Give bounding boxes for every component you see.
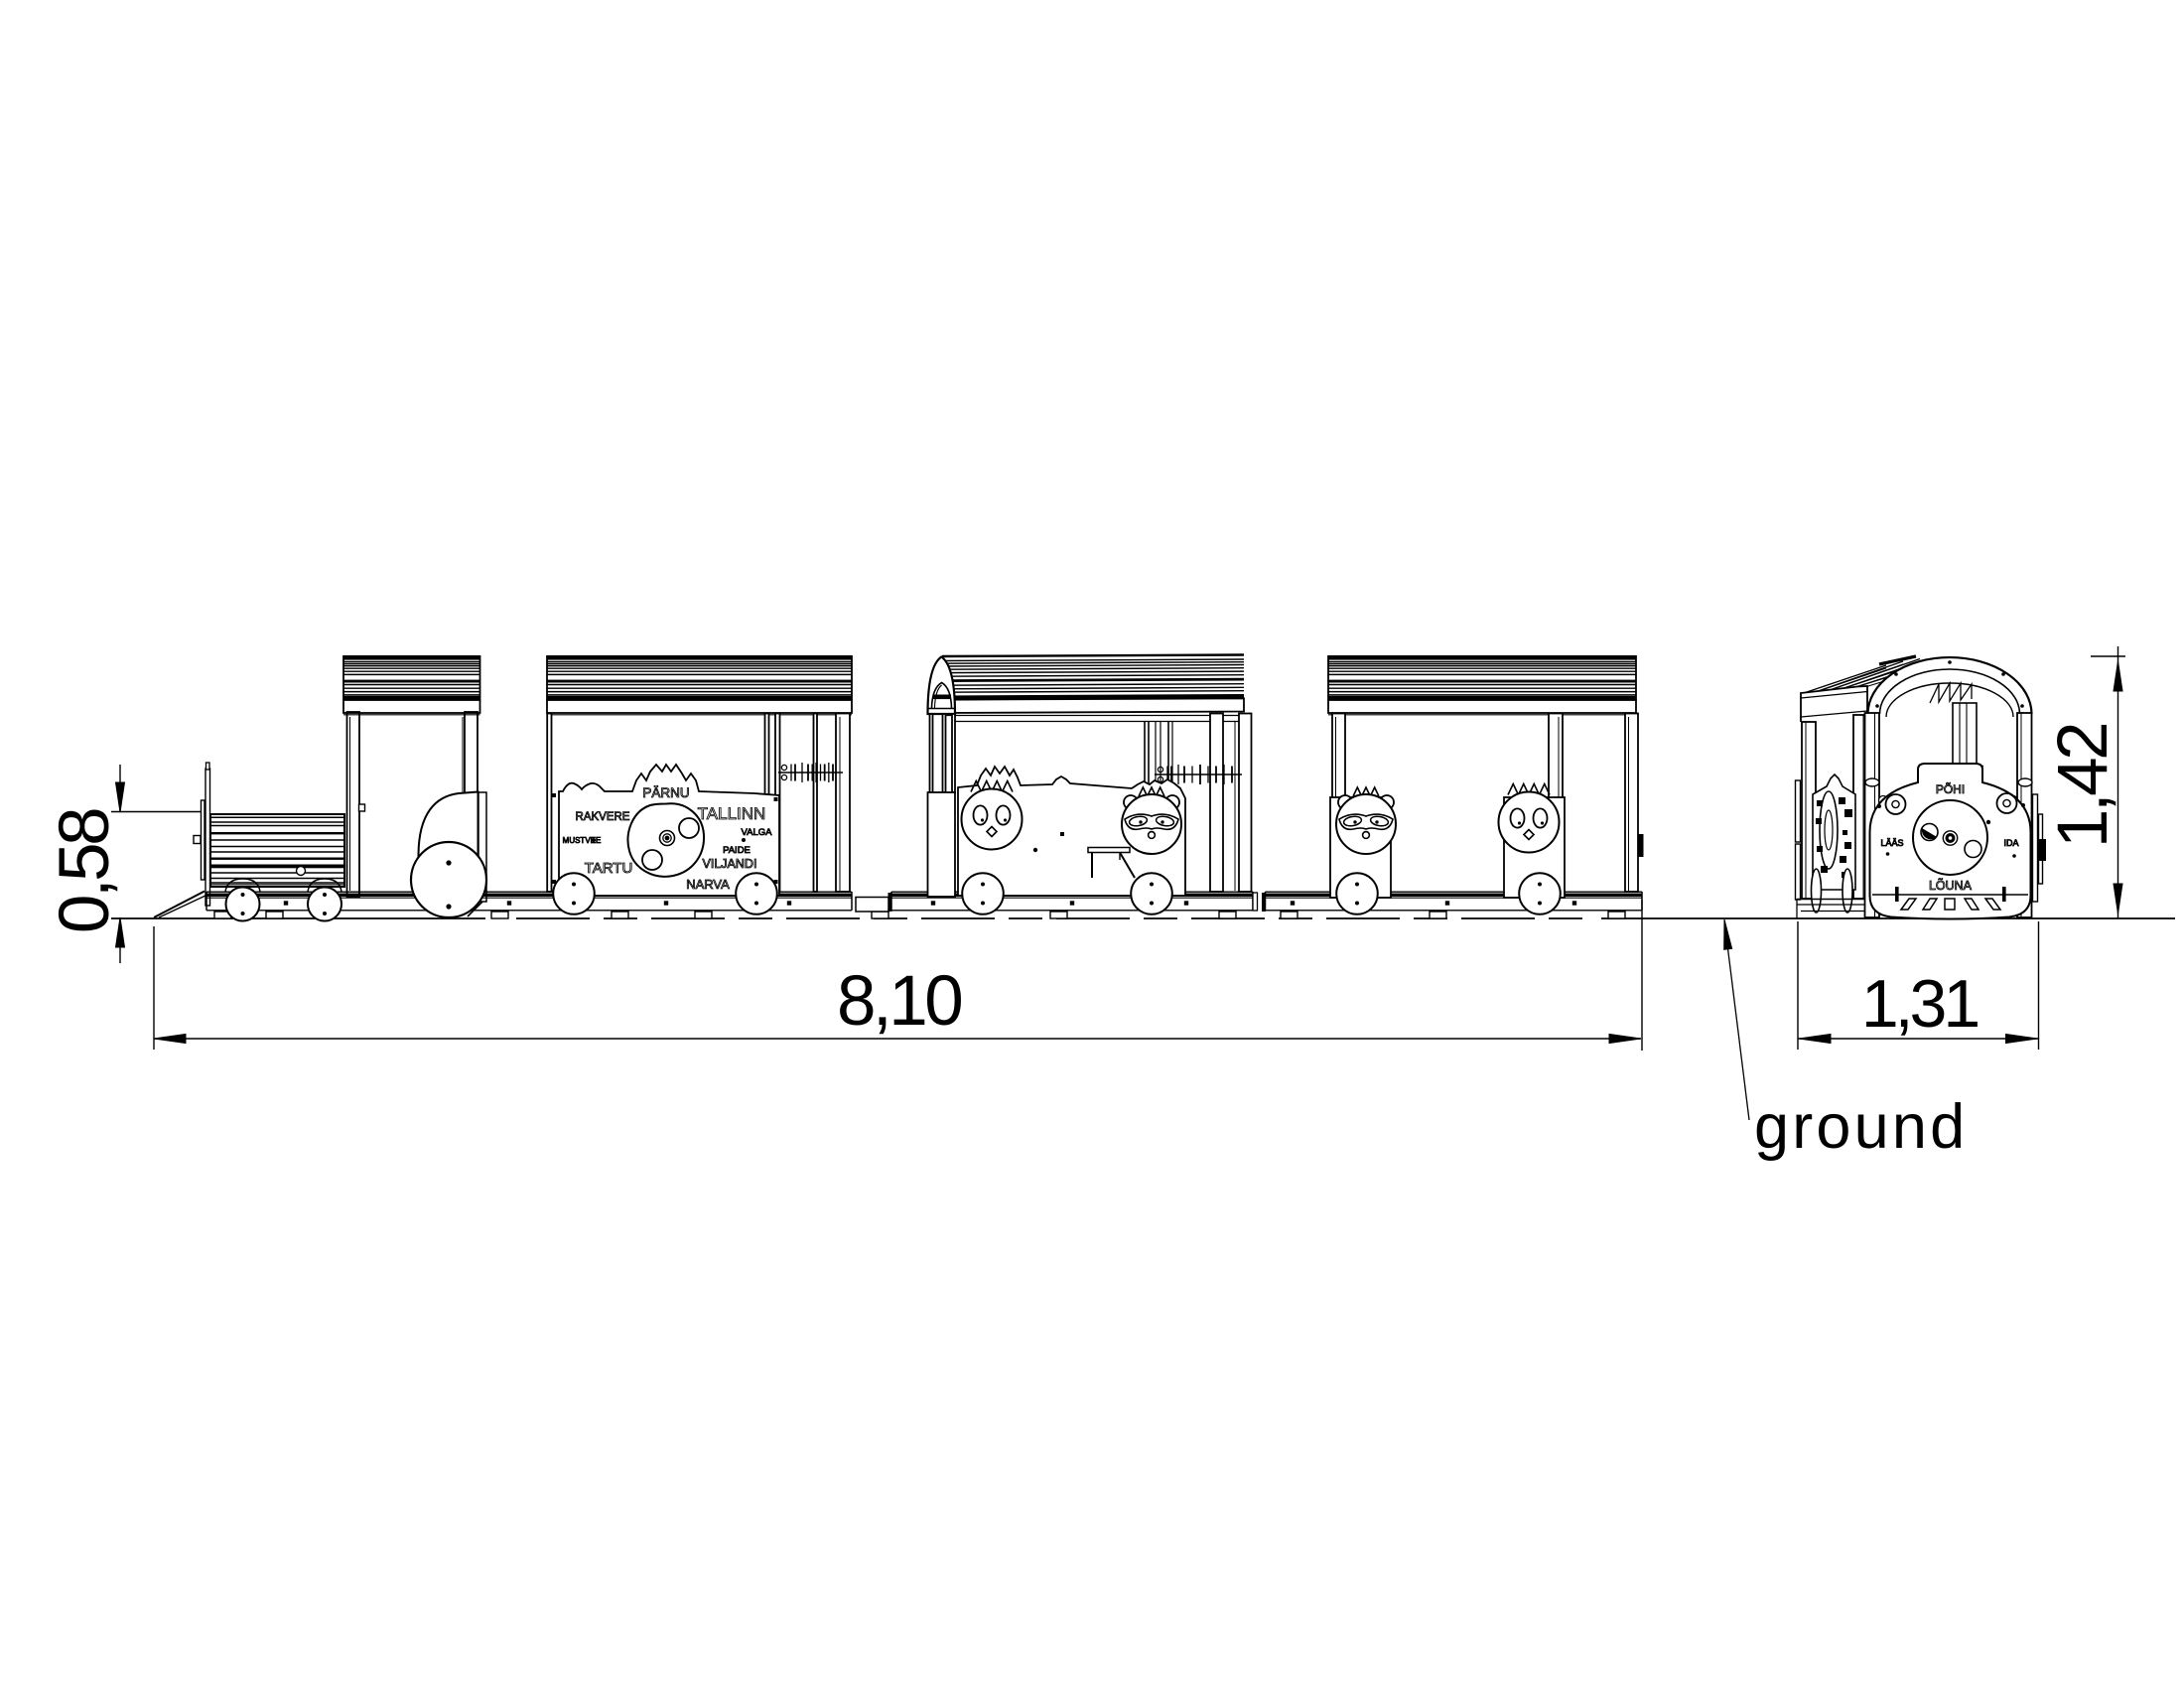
svg-text:NARVA: NARVA	[686, 877, 730, 892]
svg-text:PÕHI: PÕHI	[1936, 781, 1965, 796]
svg-text:VILJANDI: VILJANDI	[703, 857, 757, 871]
svg-text:ground: ground	[1754, 1092, 1968, 1162]
svg-text:IDA: IDA	[2003, 838, 2018, 848]
svg-text:8,10: 8,10	[837, 962, 961, 1041]
svg-text:PAIDE: PAIDE	[723, 845, 751, 856]
svg-text:LÕUNA: LÕUNA	[1929, 878, 1973, 893]
svg-text:0,58: 0,58	[46, 809, 124, 933]
svg-text:TARTU: TARTU	[585, 860, 633, 877]
svg-text:1,31: 1,31	[1861, 966, 1979, 1042]
svg-text:PÄRNU: PÄRNU	[642, 785, 689, 800]
svg-text:VALGA: VALGA	[742, 827, 773, 838]
svg-text:1,42: 1,42	[2044, 725, 2122, 848]
svg-text:MUSTVEE: MUSTVEE	[563, 836, 602, 845]
svg-text:TALLINN: TALLINN	[698, 804, 766, 823]
svg-text:RAKVERE: RAKVERE	[576, 811, 630, 823]
svg-text:LÄÄS: LÄÄS	[1880, 838, 1903, 848]
